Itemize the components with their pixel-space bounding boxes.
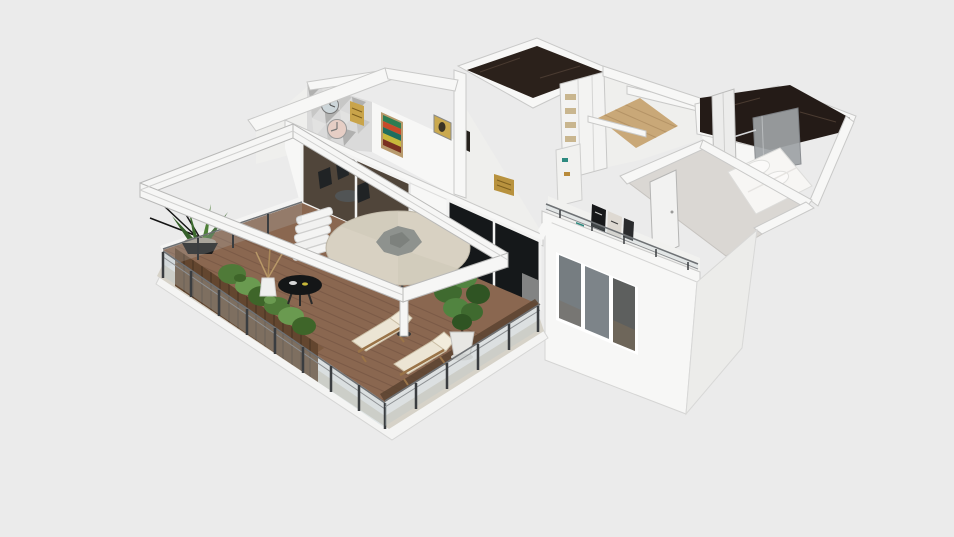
design-canvas[interactable] — [0, 0, 954, 537]
floorplan-3d-render[interactable] — [0, 0, 954, 537]
table-top — [278, 275, 322, 295]
table-item — [289, 281, 297, 285]
door-handle — [671, 211, 674, 214]
art-figure — [439, 122, 446, 132]
window-pane — [585, 266, 609, 339]
table-item — [302, 282, 308, 285]
